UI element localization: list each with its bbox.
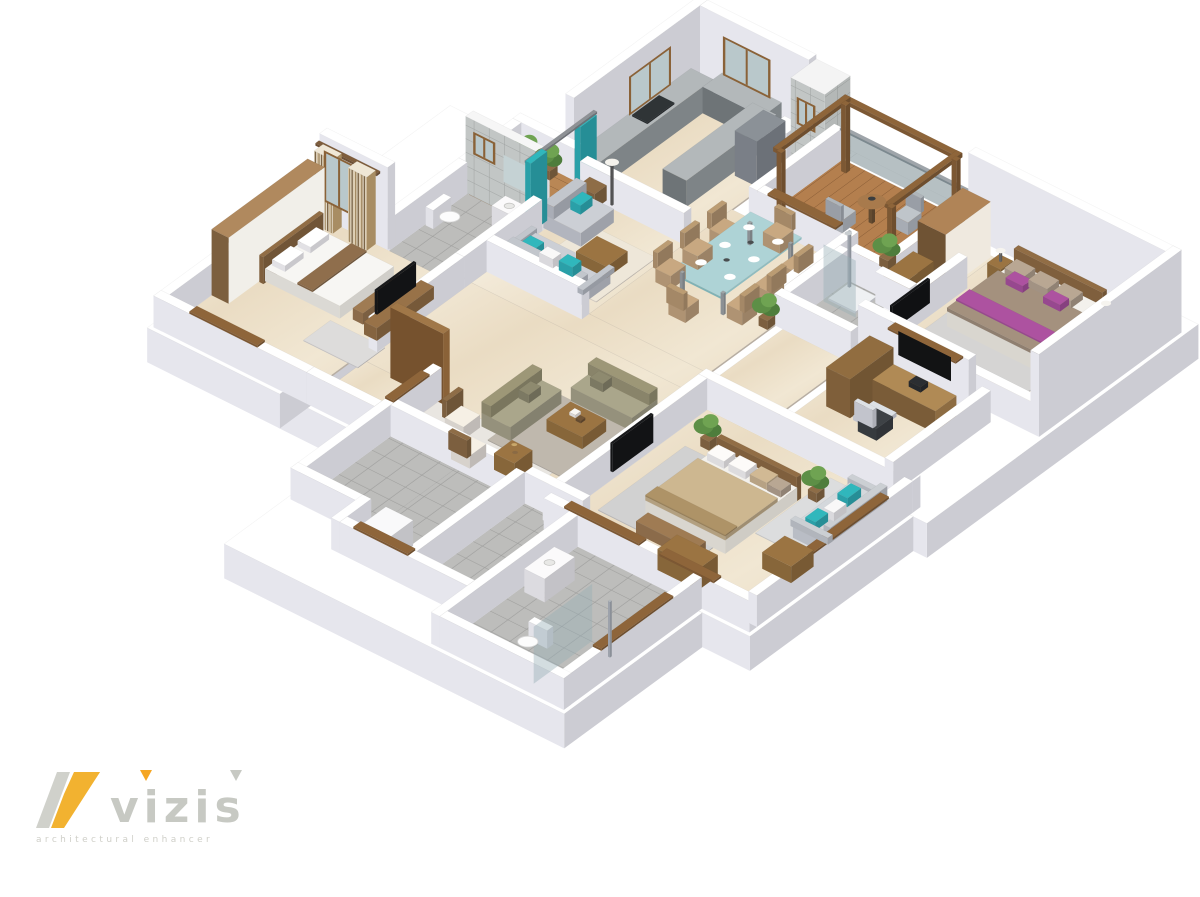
brand-accent-triangle — [140, 770, 152, 781]
bedB-lamp1-shade — [996, 248, 1006, 253]
bathB-shower-head — [845, 231, 853, 235]
lounge-lamp-shade — [605, 159, 619, 166]
brand-logo: vizis architectural enhancer — [24, 756, 324, 866]
floorplan-render-page: vizis architectural enhancer — [0, 0, 1200, 897]
brand-tagline: architectural enhancer — [36, 835, 213, 845]
brand-name: vizis — [110, 782, 246, 833]
bathA-basin — [504, 203, 514, 208]
brand-accent-triangle2 — [230, 770, 242, 781]
dining-bowl2 — [723, 258, 729, 261]
bathC-shower-pole — [608, 600, 612, 658]
dining-bowl1 — [747, 241, 753, 244]
curtain-bedroomA-2 — [348, 161, 376, 251]
pergola-post1 — [841, 101, 850, 174]
foyer-decor2 — [512, 451, 518, 454]
bedB-lamp2-shade — [1101, 301, 1111, 306]
dining-table-leg4 — [721, 291, 726, 316]
dining-plate2 — [719, 242, 731, 248]
foyer-decor1 — [511, 443, 517, 446]
dining-plate1 — [743, 224, 755, 230]
bathC-toilet-bowl — [518, 636, 538, 647]
balcony2-table-top — [857, 194, 886, 209]
bathC-basin — [544, 560, 555, 566]
lounge-lamp-pole — [610, 165, 613, 206]
apartment-3d-model — [147, 0, 1198, 748]
balcony2-vase — [868, 197, 876, 201]
dining-plate3 — [695, 259, 707, 265]
dining-plate6 — [724, 274, 736, 280]
dining-plate5 — [748, 256, 760, 262]
bathA-toilet-bowl — [440, 211, 460, 222]
dining-plate4 — [772, 239, 784, 245]
